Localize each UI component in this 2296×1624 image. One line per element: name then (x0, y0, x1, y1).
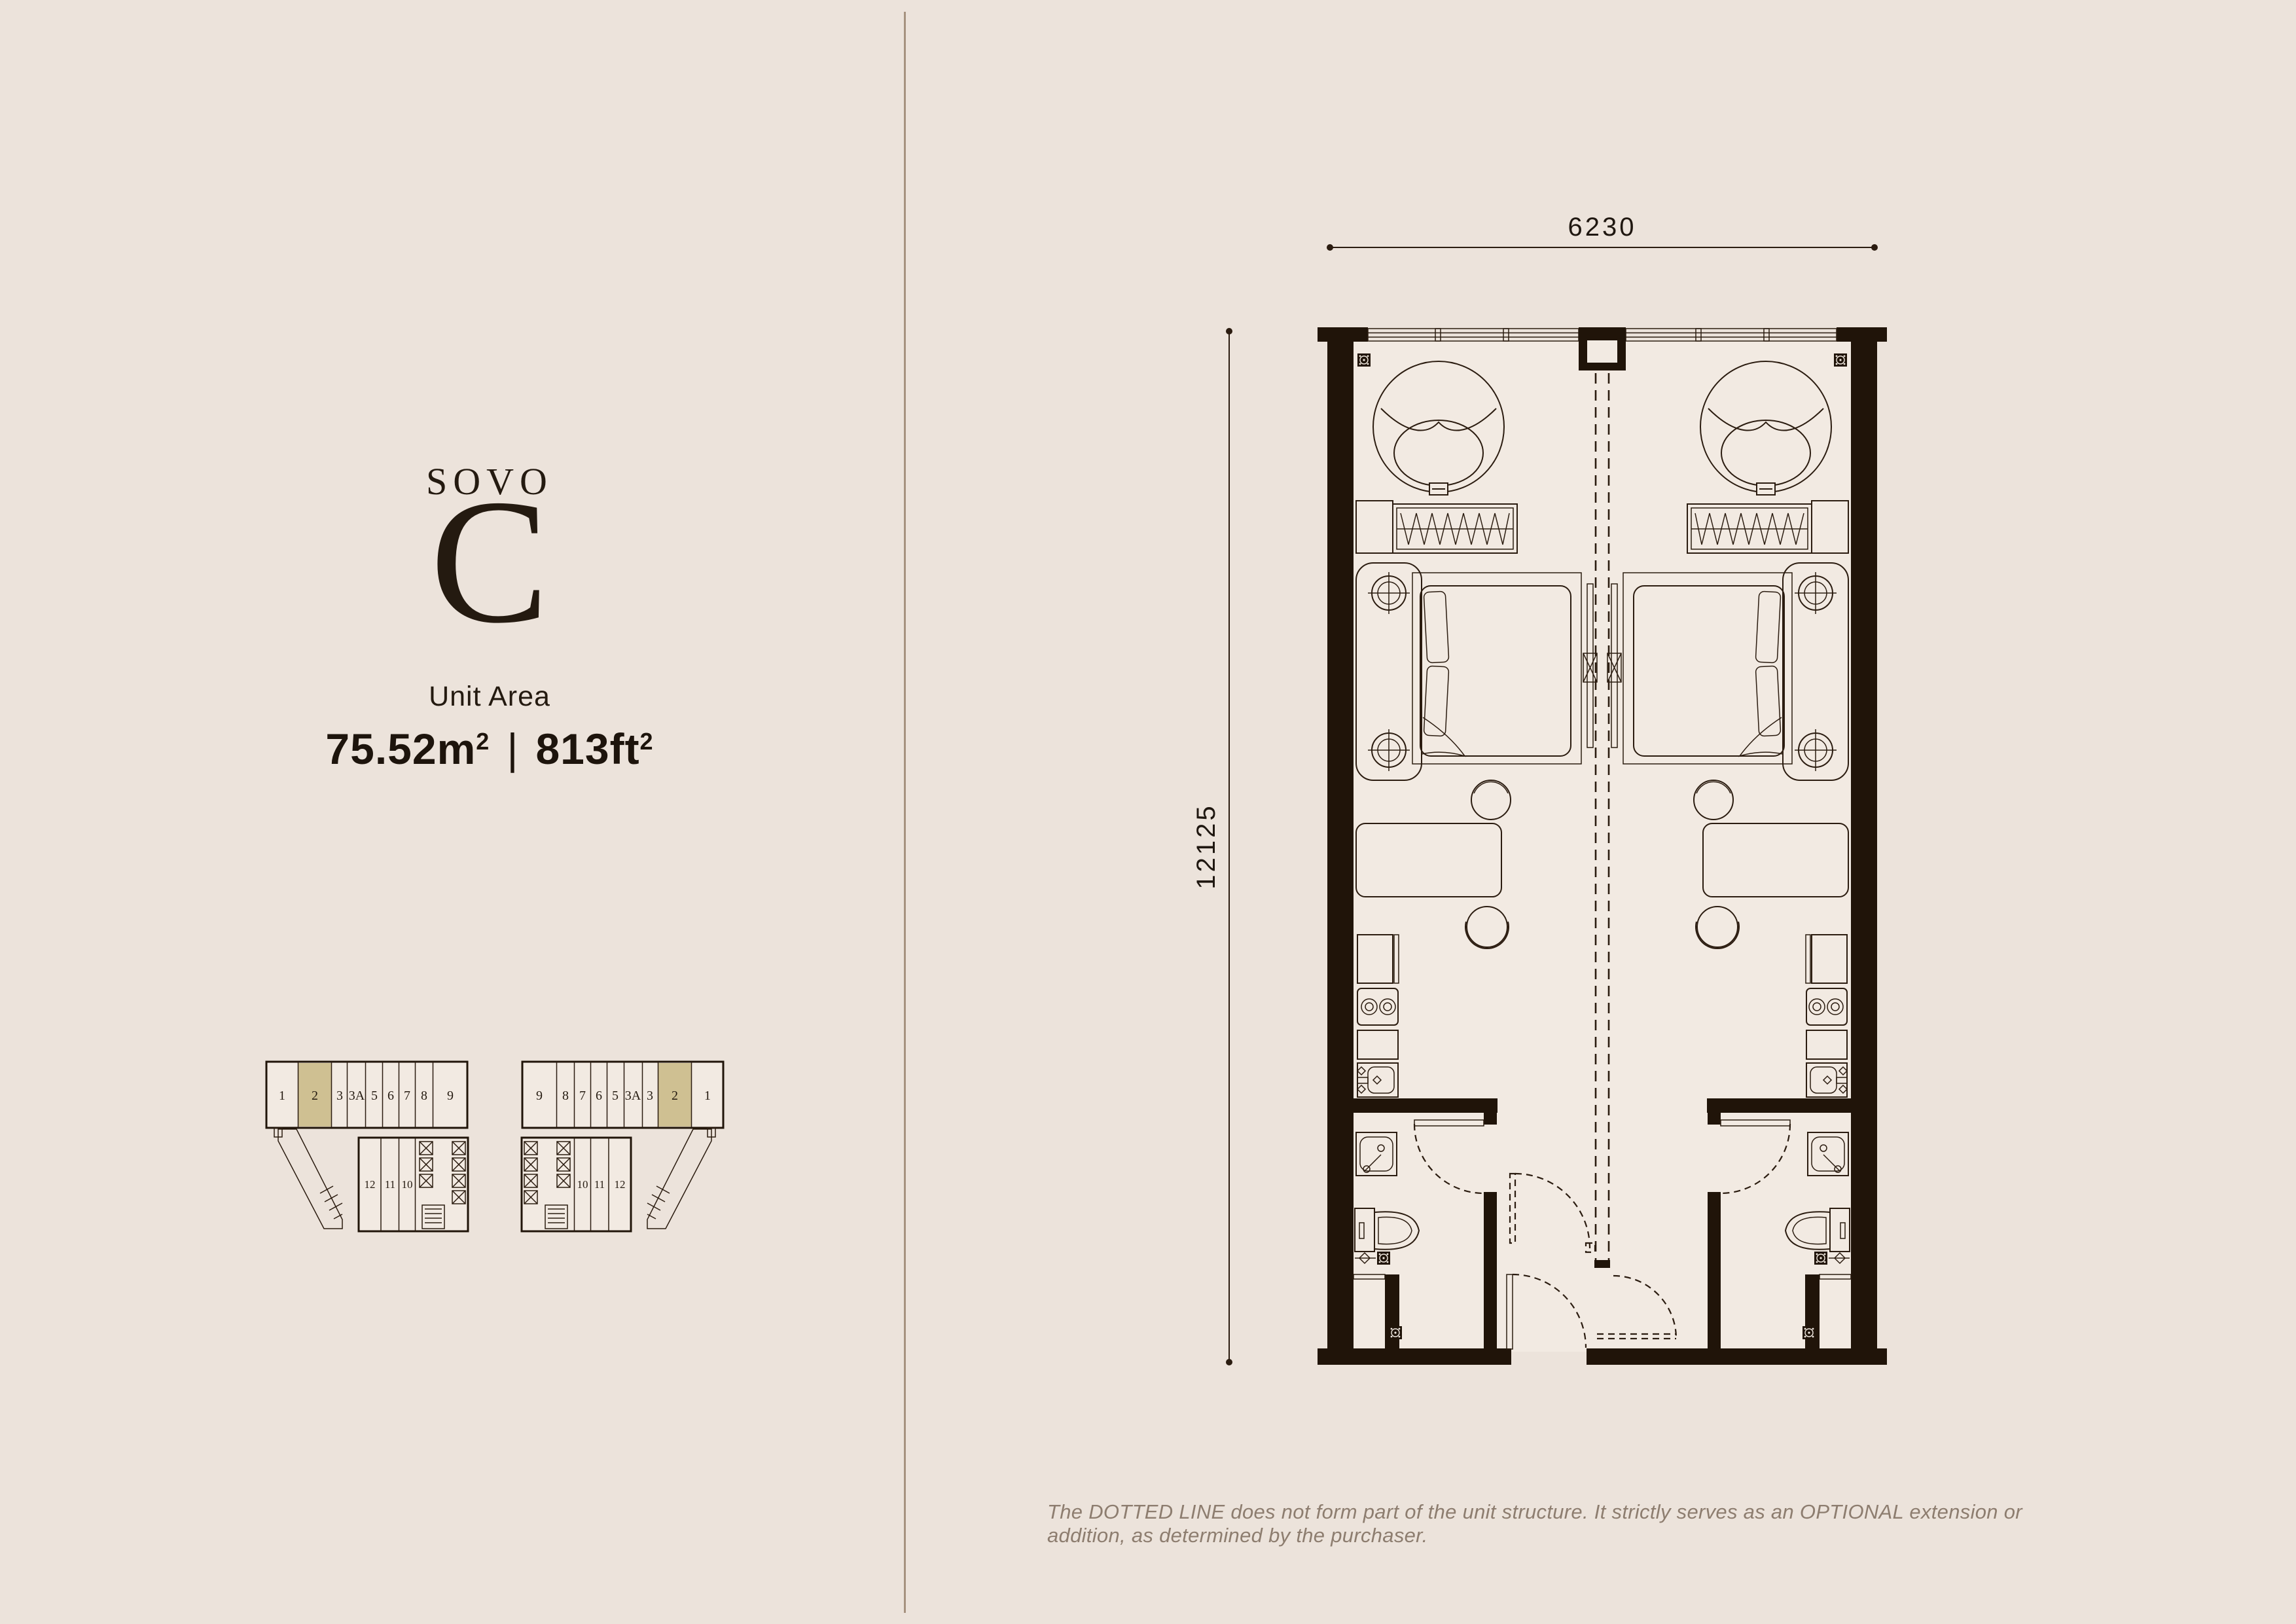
keyplan-unit-label: 5 (371, 1089, 378, 1103)
keyplan-unit-label: 2 (312, 1089, 318, 1103)
keyplan-unit-label: 9 (447, 1089, 454, 1103)
unit-area-label: Unit Area (293, 681, 686, 713)
keyplan-unit-label: 6 (596, 1089, 602, 1103)
keyplan-unit-label: 7 (404, 1089, 410, 1103)
keyplan-unit-label: 7 (579, 1089, 586, 1103)
unit-type-letter: C (293, 473, 686, 651)
keyplan-unit-label: 10 (402, 1178, 413, 1191)
keyplan-unit-label: 12 (615, 1178, 626, 1191)
area-metric: 75.52m (325, 725, 476, 773)
keyplan-unit-label: 2 (672, 1089, 678, 1103)
keyplan-unit-label: 8 (421, 1089, 427, 1103)
keyplan-unit-label: 3A (625, 1089, 641, 1103)
keyplan-unit-label: 3 (336, 1089, 343, 1103)
keyplan-unit-label: 1 (279, 1089, 285, 1103)
svg-text:6230: 6230 (1568, 213, 1637, 242)
keyplan-unit-label: 12 (365, 1178, 376, 1191)
area-imperial: 813ft (535, 725, 639, 773)
keyplan-unit-label: 5 (612, 1089, 619, 1103)
structural-column (1579, 327, 1626, 370)
keyplan-unit-label: 11 (385, 1178, 395, 1191)
keyplan-right: 9 8 7 6 5 3A 3 2 1 10 11 12 (509, 1056, 725, 1246)
floor-plan: 6230 12125 (1172, 209, 1911, 1388)
unit-floor (1340, 340, 1864, 1352)
dimension-height: 12125 (1192, 328, 1232, 1365)
keyplan-unit-label: 8 (562, 1089, 569, 1103)
keyplan-unit-label: 11 (594, 1178, 605, 1191)
area-metric-sup: 2 (476, 728, 490, 755)
keyplan-unit-label: 3A (349, 1089, 365, 1103)
dimension-width: 6230 (1327, 213, 1878, 251)
keyplan-unit-label: 1 (704, 1089, 711, 1103)
keyplan-unit-label: 6 (387, 1089, 394, 1103)
keyplan-unit-label: 3 (647, 1089, 653, 1103)
keyplan-unit-label: 10 (577, 1178, 588, 1191)
bottom-wall (1318, 1348, 1511, 1365)
keyplan-unit-label: 9 (536, 1089, 543, 1103)
disclaimer-note: The DOTTED LINE does not form part of th… (1047, 1500, 2081, 1547)
unit-area-value: 75.52m2|813ft2 (228, 724, 751, 774)
area-separator: | (490, 725, 535, 773)
keyplan-left: 1 2 3 3A 5 6 7 8 9 12 11 10 (265, 1056, 481, 1246)
svg-text:12125: 12125 (1192, 803, 1221, 889)
bottom-wall (1587, 1348, 1887, 1365)
panel-divider (904, 12, 906, 1613)
area-imperial-sup: 2 (640, 728, 654, 755)
